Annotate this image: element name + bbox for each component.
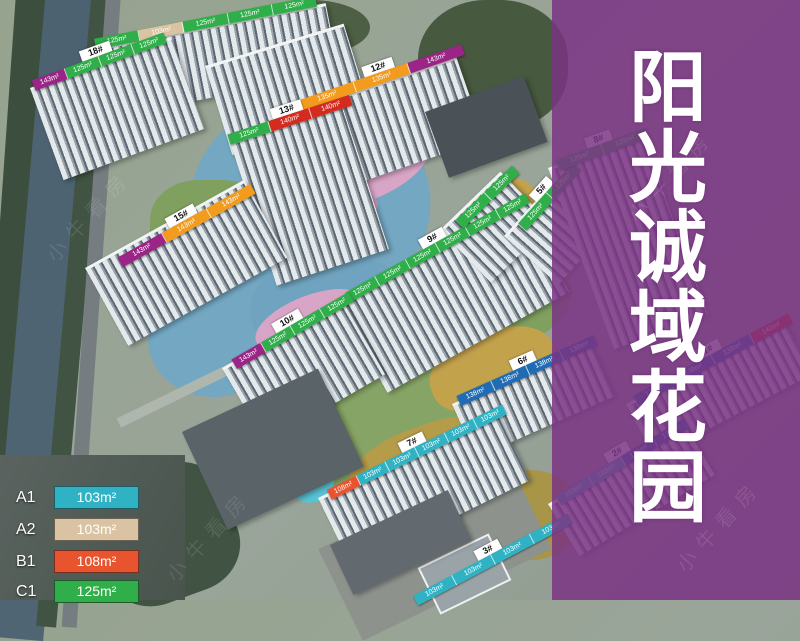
legend-type-label: B1	[16, 553, 54, 571]
legend-type-label: A2	[16, 521, 54, 539]
unit-type-legend: A1 103m² A2 103m² B1 108m² C1 125m²	[0, 455, 185, 600]
legend-type-label: A1	[16, 489, 54, 507]
legend-row-a1: A1 103m²	[16, 486, 139, 509]
legend-size-swatch: 103m²	[54, 486, 139, 509]
real-estate-poster: { "page": { "title_vertical": "阳光诚域花园", …	[0, 0, 800, 600]
legend-row-b1: B1 108m²	[16, 550, 139, 573]
legend-type-label: C1	[16, 583, 54, 601]
project-title: 阳光诚域花园	[620, 46, 704, 526]
legend-size-swatch: 103m²	[54, 518, 139, 541]
legend-row-a2: A2 103m²	[16, 518, 139, 541]
legend-size-swatch: 108m²	[54, 550, 139, 573]
